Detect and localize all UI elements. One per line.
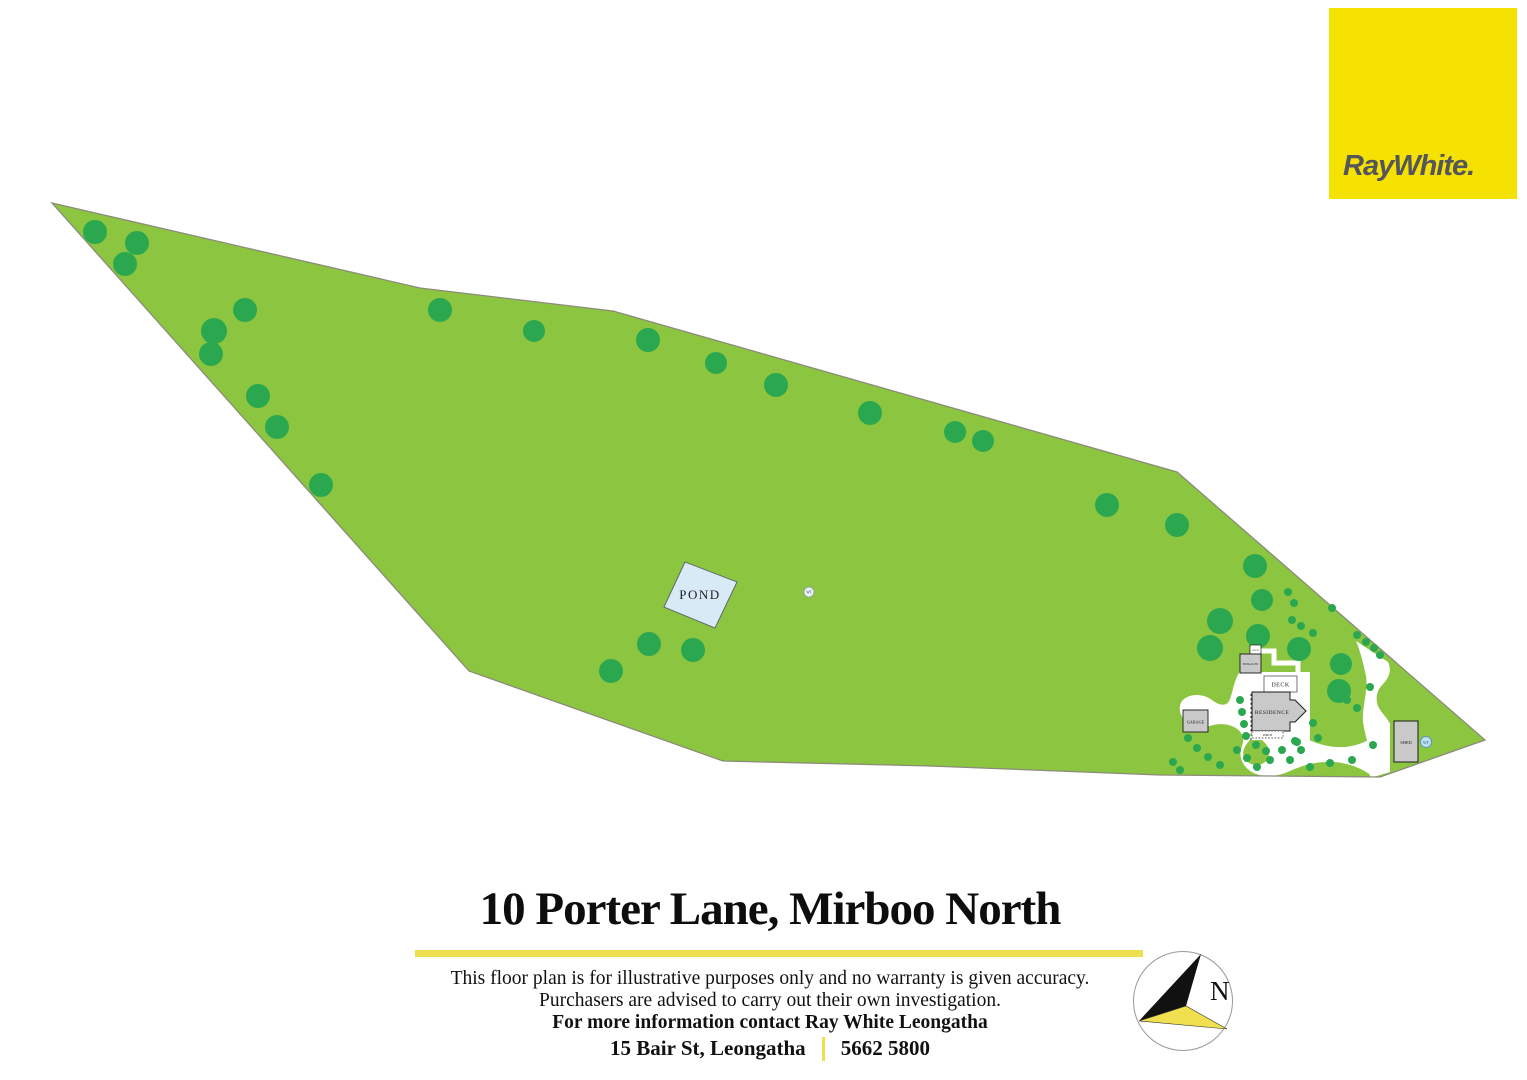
shrub <box>1243 754 1251 762</box>
shrub <box>1278 746 1286 754</box>
shrub <box>1290 599 1298 607</box>
tree <box>1246 624 1270 648</box>
shrub <box>1204 753 1212 761</box>
raywhite-logo: RayWhite. <box>1329 8 1517 199</box>
garage-label: GARAGE <box>1187 720 1205 725</box>
shrub <box>1297 746 1305 754</box>
shrub <box>1343 696 1351 704</box>
shrub <box>1252 741 1260 749</box>
tree <box>309 473 333 497</box>
contact-line: For more information contact Ray White L… <box>320 1012 1220 1034</box>
shrub <box>1369 741 1377 749</box>
water-tank-label: WT <box>806 591 812 595</box>
shrub <box>1348 756 1356 764</box>
deck-label: DECK <box>1271 683 1290 689</box>
disclaimer-line-1: This floor plan is for illustrative purp… <box>320 968 1220 990</box>
shrub <box>1240 720 1248 728</box>
tree <box>246 384 270 408</box>
shrub <box>1242 732 1250 740</box>
tree <box>764 373 788 397</box>
bungalow-label: BUNGALOW <box>1243 663 1259 666</box>
tree <box>265 415 289 439</box>
shrub <box>1193 744 1201 752</box>
shrub <box>1291 737 1299 745</box>
shrub <box>1366 683 1374 691</box>
tree <box>199 342 223 366</box>
tree <box>1197 635 1223 661</box>
tree <box>705 352 727 374</box>
footer-block: 10 Porter Lane, Mirboo North This floor … <box>320 884 1220 936</box>
shrub <box>1353 631 1361 639</box>
shrub <box>1238 708 1246 716</box>
tree <box>428 298 452 322</box>
tree <box>233 298 257 322</box>
porch-label: PORCH <box>1263 734 1272 737</box>
shrub <box>1376 651 1384 659</box>
shrub <box>1233 746 1241 754</box>
tree <box>944 421 966 443</box>
tree <box>681 638 705 662</box>
shrub <box>1328 604 1336 612</box>
shrub <box>1266 756 1274 764</box>
pond-label: POND <box>679 587 720 602</box>
site-plan-page: POND WT GARAGE DECK BUNGALOW DECK RESIDE… <box>0 0 1527 1080</box>
raywhite-logo-text: RayWhite. <box>1343 150 1474 183</box>
tree <box>1330 653 1352 675</box>
shrub <box>1286 756 1294 764</box>
shrub <box>1176 766 1184 774</box>
tree <box>1207 608 1233 634</box>
shrub <box>1253 763 1261 771</box>
address-phone-line: 15 Bair St, Leongatha 5662 5800 <box>320 1036 1220 1061</box>
shrub <box>1362 638 1370 646</box>
tree <box>636 328 660 352</box>
shrub <box>1169 758 1177 766</box>
tree <box>125 231 149 255</box>
shrub <box>1284 588 1292 596</box>
tree <box>1243 554 1267 578</box>
shrub <box>1306 763 1314 771</box>
tree <box>1165 513 1189 537</box>
shrub <box>1288 616 1296 624</box>
tree <box>201 318 227 344</box>
tree <box>83 220 107 244</box>
office-phone: 5662 5800 <box>841 1036 930 1061</box>
page-title: 10 Porter Lane, Mirboo North <box>320 884 1220 936</box>
tree <box>858 401 882 425</box>
tree <box>599 659 623 683</box>
shrub <box>1216 761 1224 769</box>
tree <box>1095 493 1119 517</box>
shrub <box>1184 734 1192 742</box>
residence-label: RESIDENCE <box>1255 710 1290 716</box>
shrub <box>1236 696 1244 704</box>
tree <box>972 430 994 452</box>
shrub <box>1309 719 1317 727</box>
shrub <box>1262 747 1270 755</box>
shrub <box>1309 629 1317 637</box>
address-phone-divider <box>822 1037 825 1061</box>
shrub <box>1370 644 1378 652</box>
disclaimer-line-2: Purchasers are advised to carry out thei… <box>320 990 1220 1012</box>
bungalow-deck-label: DECK <box>1252 649 1259 652</box>
tree <box>523 320 545 342</box>
shrub <box>1353 704 1361 712</box>
shed-water-tank-label: WT <box>1423 741 1430 745</box>
office-address: 15 Bair St, Leongatha <box>610 1036 806 1061</box>
tree <box>1251 589 1273 611</box>
tree <box>1287 637 1311 661</box>
tree <box>113 252 137 276</box>
shrub <box>1326 759 1334 767</box>
shrub <box>1314 734 1322 742</box>
title-underline-bar <box>415 950 1143 957</box>
shrub <box>1297 622 1305 630</box>
tree <box>637 632 661 656</box>
shed-label: SHED <box>1400 740 1411 745</box>
